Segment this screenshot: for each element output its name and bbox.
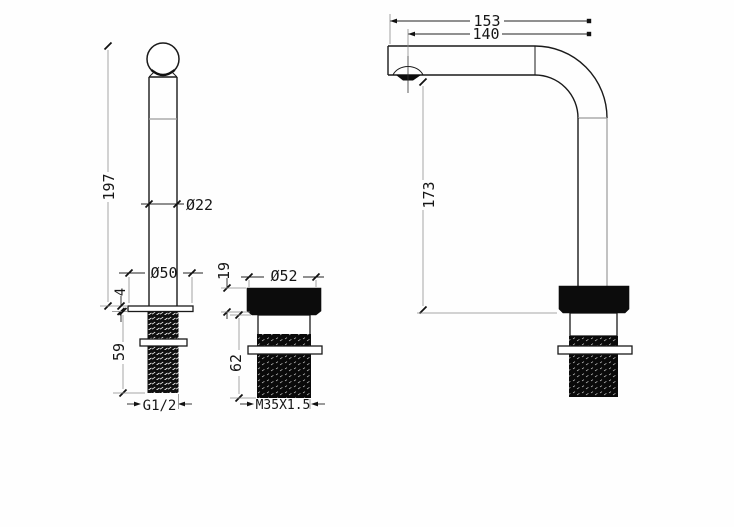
aerator-outlet <box>396 75 421 81</box>
spout-outer-edge <box>388 46 607 118</box>
spout-base-body <box>570 313 617 336</box>
base-thread <box>257 334 311 398</box>
handle-thread-knurl <box>148 312 179 394</box>
handle-front-view <box>128 43 193 393</box>
spout-base-thread <box>569 336 618 397</box>
base-detail-view <box>247 288 322 398</box>
base-cap <box>247 288 321 315</box>
dim-spout-reach-aerator: 140 <box>472 25 499 43</box>
handle-locknut <box>140 339 187 346</box>
dim-handle-height: 197 <box>100 173 118 200</box>
dim-cap-height: 19 <box>215 262 233 280</box>
base-locknut <box>248 346 322 354</box>
dim-handle-thread-spec: G1/2 <box>143 398 177 414</box>
dim-flange-diameter: Ø50 <box>150 264 177 282</box>
dim-handle-thread-length: 59 <box>110 343 128 361</box>
dim-handle-diameter: Ø22 <box>186 196 213 214</box>
spout-side-view <box>388 46 632 397</box>
spout-base-cap <box>559 286 629 313</box>
tick <box>105 43 112 50</box>
dim-body-length: 62 <box>227 354 245 372</box>
dim-body-thread-spec: M35X1.5 <box>256 398 311 413</box>
technical-drawing: 197 Ø22 Ø50 4 59 G1/2 <box>0 0 734 527</box>
spout-base-locknut <box>558 346 632 354</box>
drawing-canvas: 197 Ø22 Ø50 4 59 G1/2 <box>0 0 734 527</box>
spout-side-dimensions: 153 140 173 <box>390 12 591 314</box>
dim-spout-height: 173 <box>420 181 438 208</box>
dim-cap-diameter: Ø52 <box>270 267 297 285</box>
base-body <box>258 315 310 335</box>
spout-inner-edge <box>388 75 578 118</box>
dim-flange-thickness: 4 <box>113 288 129 296</box>
handle-flange <box>128 306 193 312</box>
